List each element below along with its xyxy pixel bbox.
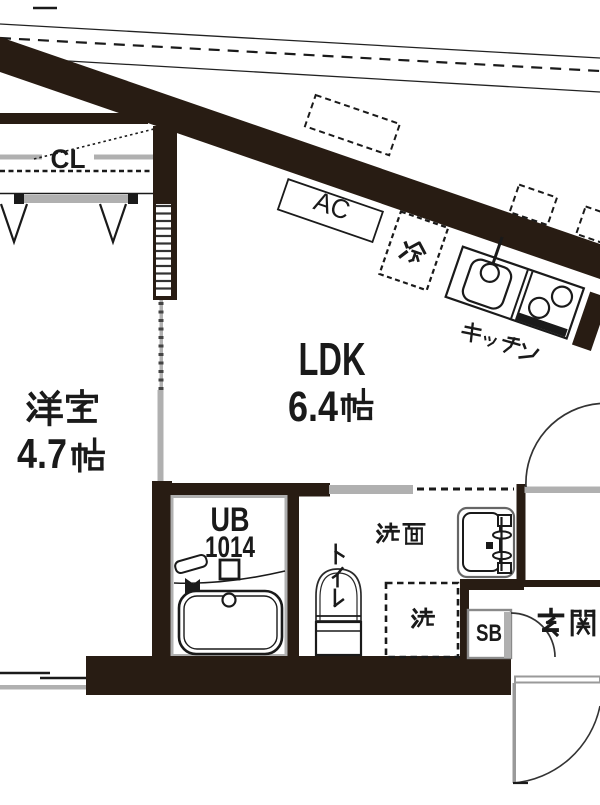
svg-text:SB: SB bbox=[476, 620, 502, 647]
svg-text:6.4: 6.4 bbox=[288, 383, 338, 431]
svg-text:4.7: 4.7 bbox=[17, 430, 67, 477]
svg-text:CL: CL bbox=[51, 144, 86, 174]
svg-text:LDK: LDK bbox=[299, 333, 366, 385]
